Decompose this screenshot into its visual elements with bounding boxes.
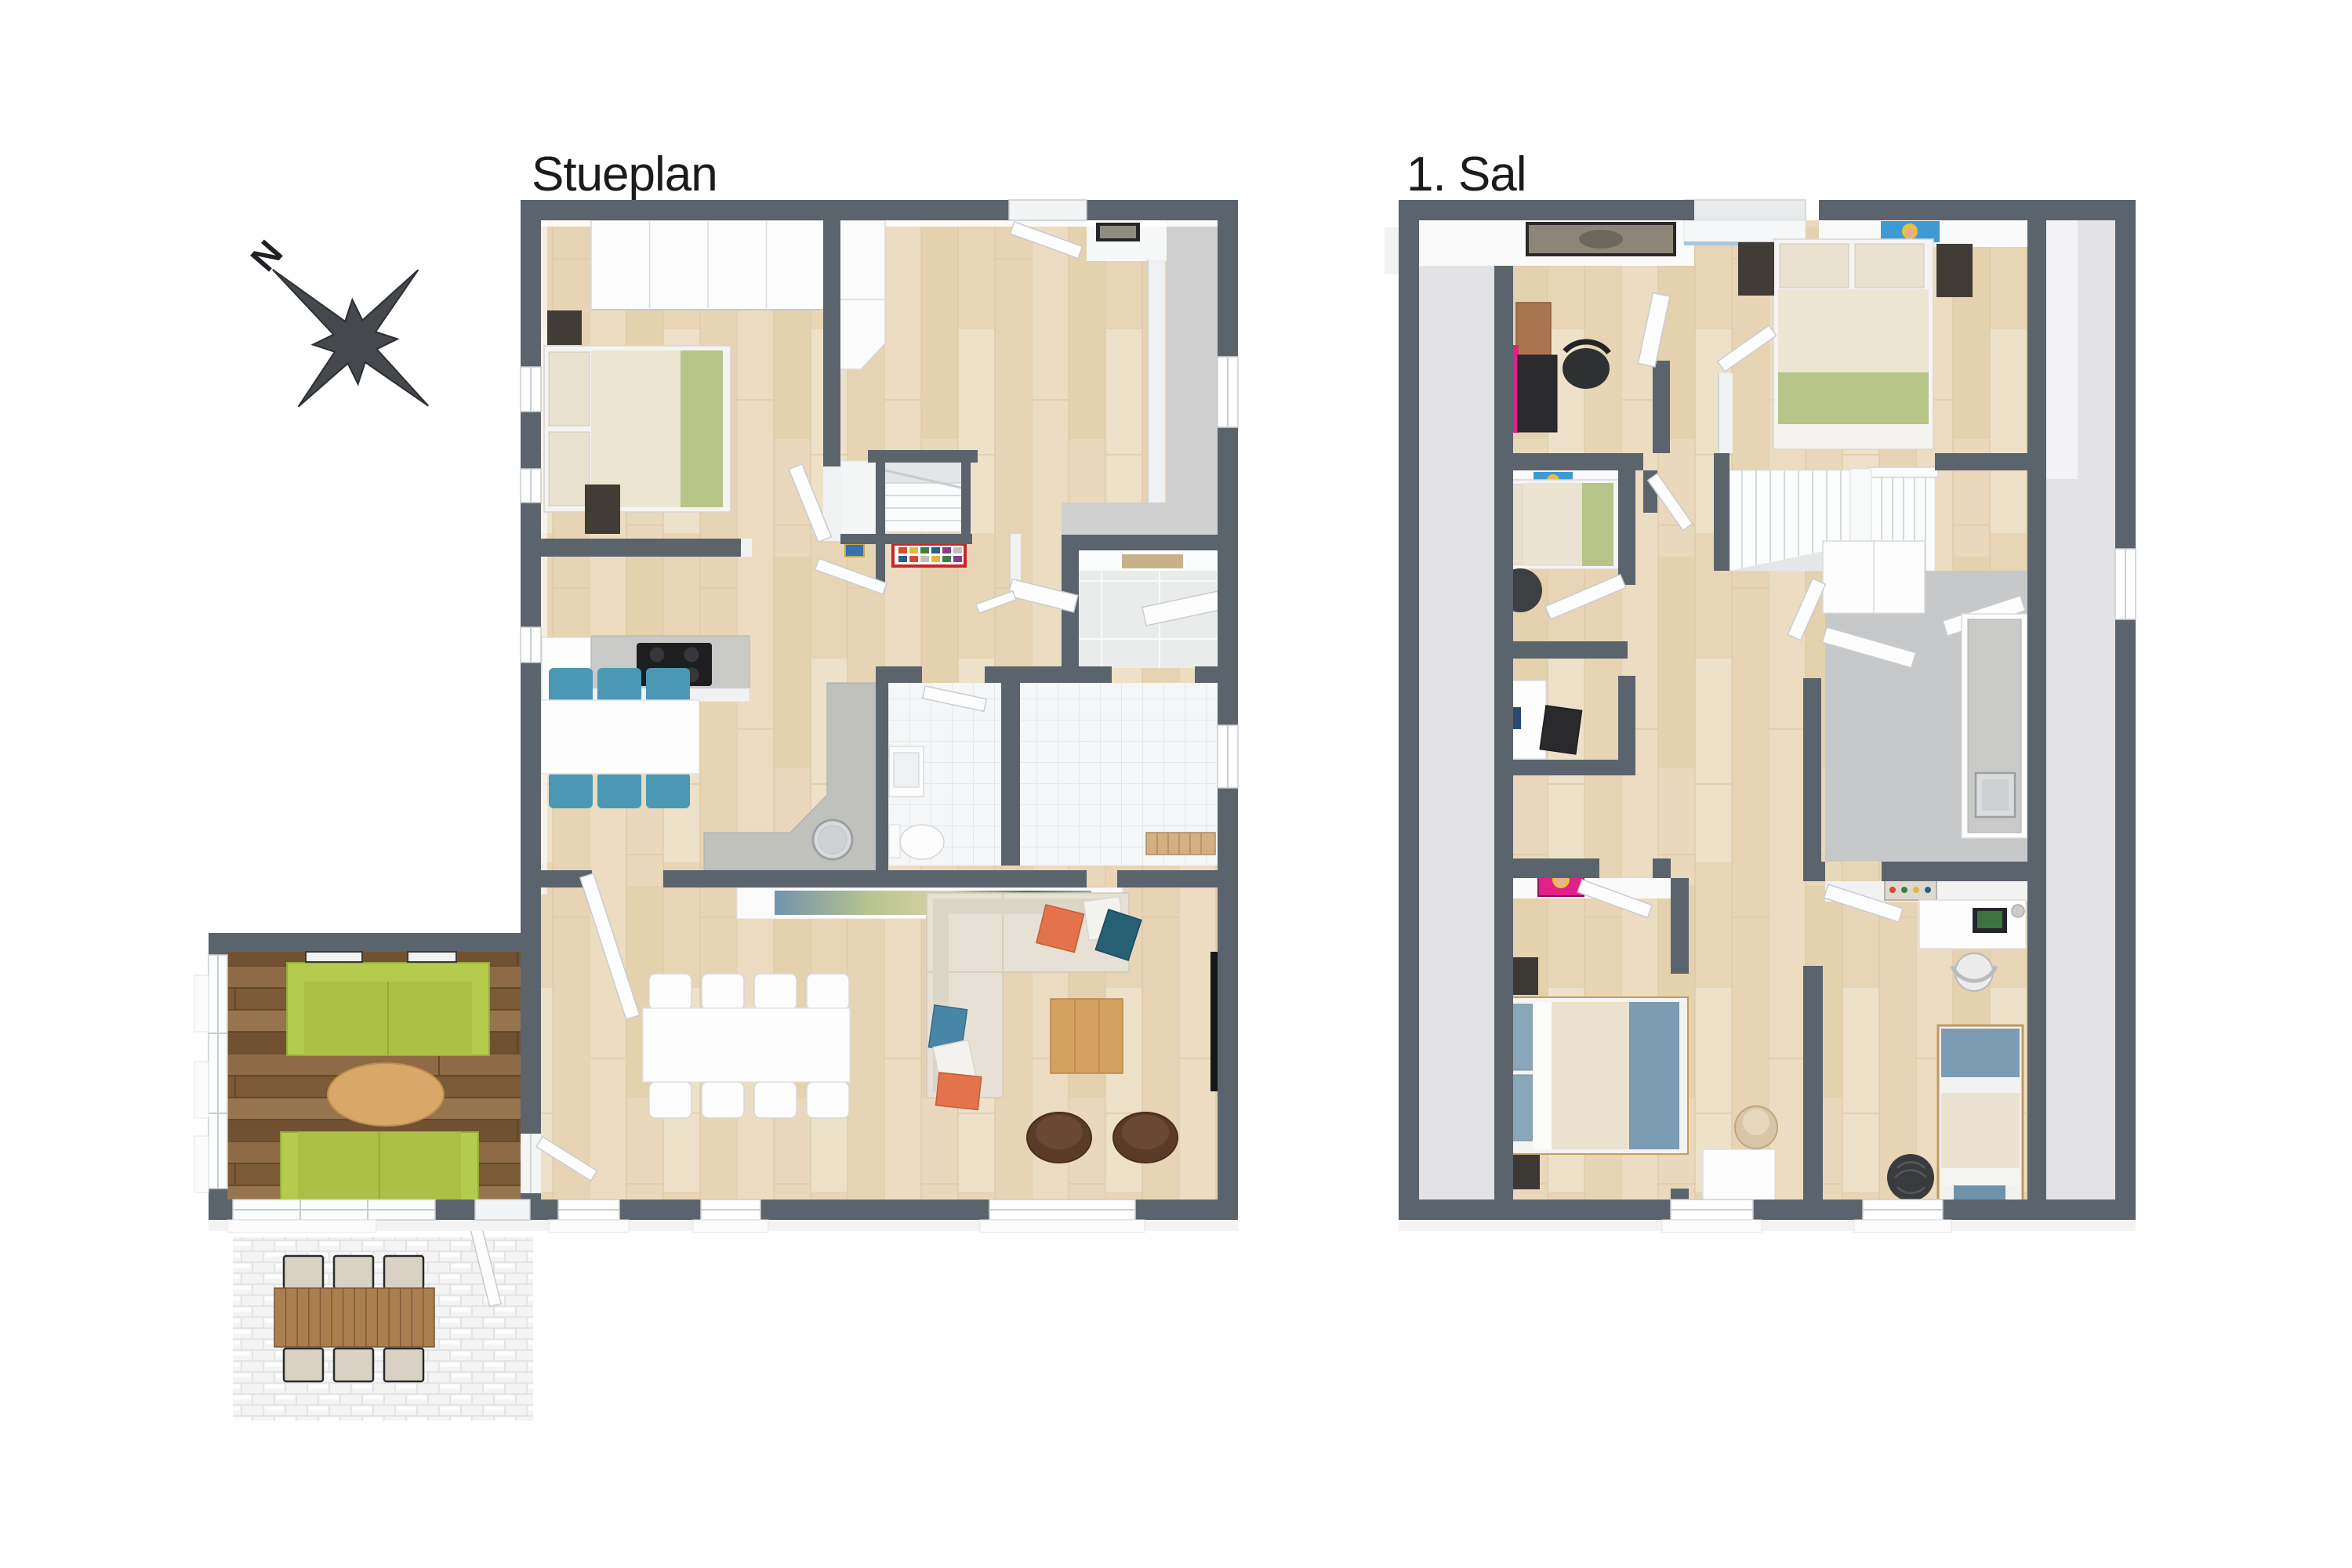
svg-text:1. Sal: 1. Sal <box>1406 147 1526 201</box>
svg-text:Stueplan: Stueplan <box>532 147 717 201</box>
